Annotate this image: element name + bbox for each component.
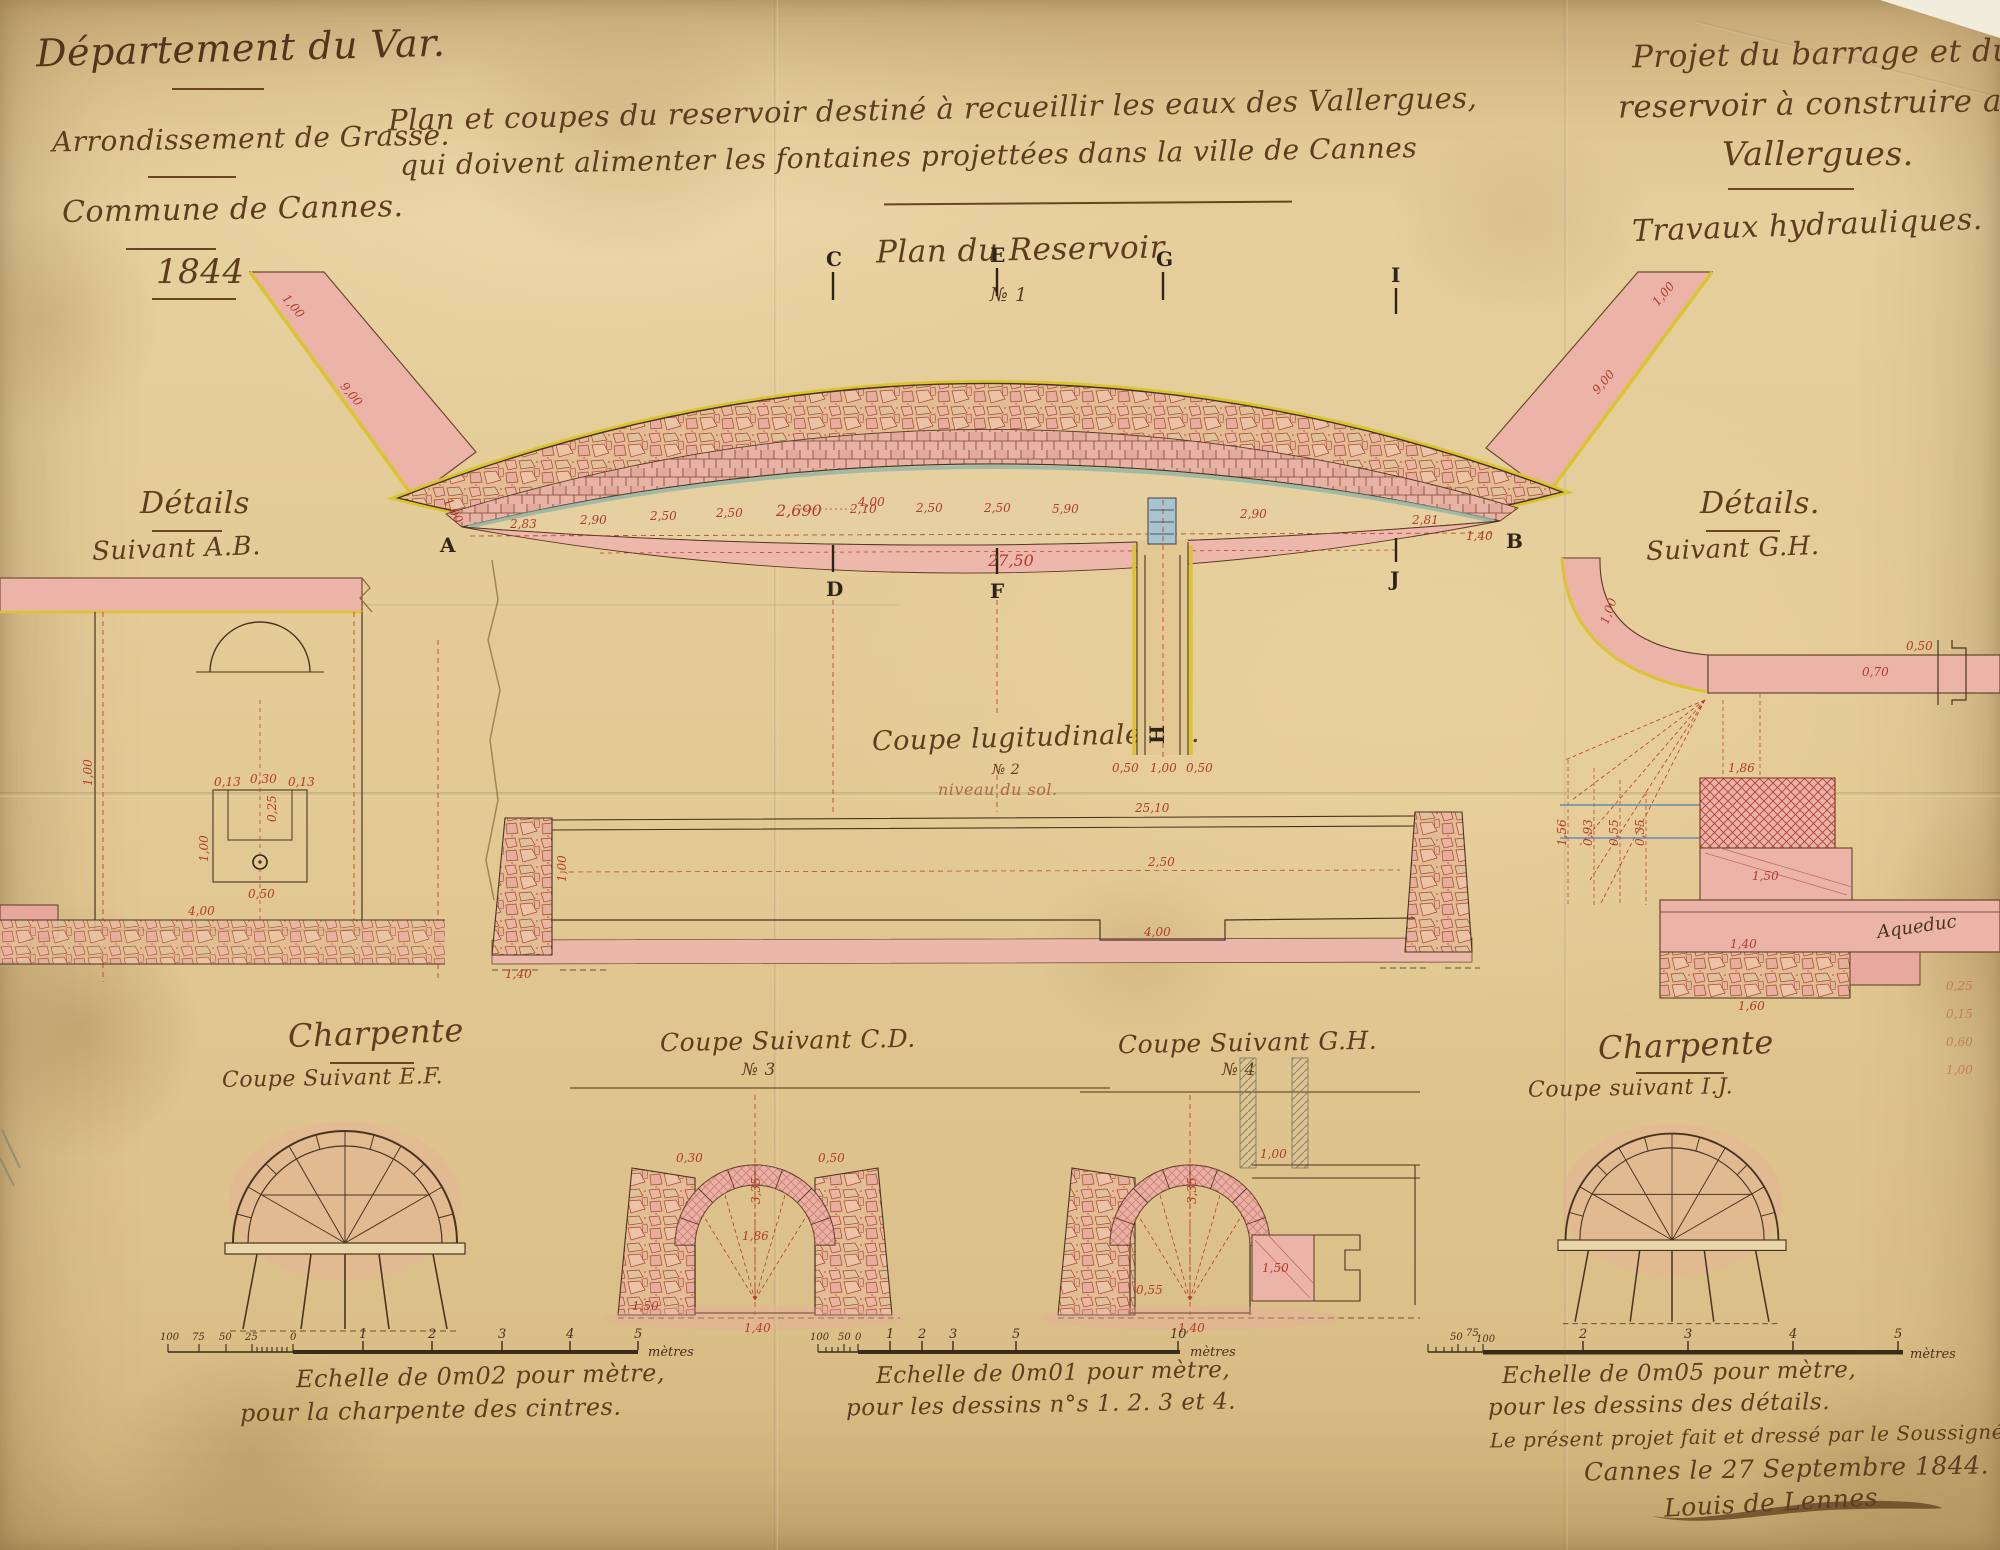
dimension-label: 1,60: [1738, 999, 1765, 1013]
scale-tick-label: 2: [1578, 1327, 1587, 1342]
plan-letter-c: C: [826, 247, 842, 271]
dimension-label: 4,00: [187, 904, 215, 918]
plan-letter-a: A: [439, 533, 456, 557]
margin-figure: 0,15: [1946, 1007, 1973, 1021]
dimension-label: 2,50: [983, 501, 1011, 515]
dimension-label: 0,50: [248, 887, 275, 901]
dimension-label: 0,50: [818, 1151, 845, 1165]
dimension-label: 2,83: [509, 517, 537, 531]
dimension-label: 4,00: [1143, 925, 1171, 939]
dimension-label: 0,13: [214, 775, 241, 789]
dimension-label: 0,50: [1186, 761, 1213, 775]
scale-unit-label: mètres: [1910, 1347, 1956, 1362]
plan-letter-e: E: [990, 243, 1005, 267]
scale-tick-label: 50: [219, 1332, 232, 1343]
plan-letter-j: J: [1388, 567, 1399, 591]
dimension-label: 4,00: [857, 495, 885, 509]
dimension-label: 1,00: [1260, 1147, 1287, 1161]
scale-tick-label: 100: [810, 1332, 830, 1343]
scale-tick-label: 4: [565, 1327, 574, 1342]
scale-tick-label: 2: [917, 1327, 926, 1342]
margin-figure: 0,60: [1946, 1035, 1973, 1049]
coupe-gh-drawing: [1040, 1058, 1420, 1330]
scale-tick-label: 5: [1012, 1327, 1020, 1342]
dimension-label: 1,00: [197, 835, 211, 862]
dimension-label: 0,50: [1112, 761, 1139, 775]
dimension-label: 3,35: [749, 1177, 763, 1204]
dimension-label: 1,40: [1730, 937, 1757, 951]
scale-tick-label: 3: [1684, 1327, 1692, 1342]
dimension-label: 0,35: [1633, 819, 1647, 846]
dimension-label: 0,93: [1581, 819, 1595, 846]
dimension-label: 0,70: [1862, 665, 1889, 679]
dimension-label: 1,00: [555, 855, 569, 882]
scale-tick-label: 3: [498, 1327, 506, 1342]
charpente-ij-drawing: [1558, 1124, 1786, 1324]
dimension-label: 2,50: [915, 501, 943, 515]
plan-letter-g: G: [1156, 247, 1173, 271]
plan-letter-h: H: [1145, 725, 1169, 744]
scale-bar-center: [818, 1341, 1180, 1354]
dimension-label: 0,55: [1136, 1283, 1163, 1297]
margin-figure: 0,25: [1946, 979, 1973, 993]
dimension-label: 1,86: [742, 1229, 769, 1243]
scale-tick-label: 0: [855, 1332, 862, 1343]
scale-tick-label: 4: [1788, 1327, 1797, 1342]
scale-bar-right: [1428, 1341, 1903, 1355]
longitudinal-section-drawing: [486, 560, 1480, 970]
dimension-label: 25,10: [1134, 801, 1170, 815]
dimension-label: 2,50: [1147, 855, 1175, 869]
dimension-label: 1,40: [1466, 529, 1493, 543]
pencil-marks: [0, 1130, 20, 1186]
dimension-label: 0,55: [1607, 819, 1621, 846]
dimension-label: 2,50: [715, 506, 743, 520]
drawing-sheet: Département du Var. Arrondissement de Gr…: [0, 0, 2000, 1550]
plan-letter-i: I: [1391, 263, 1400, 287]
scale-tick-label: 3: [949, 1327, 957, 1342]
dimension-label: 1,40: [505, 967, 532, 981]
dimension-label: 1,50: [1752, 869, 1779, 883]
scale-tick-label: 1: [886, 1327, 894, 1342]
plan-letter-d: D: [826, 577, 843, 601]
dimension-label: 0,50: [1906, 639, 1933, 653]
plan-letter-f: F: [990, 579, 1004, 603]
scale-tick-label: 2: [427, 1327, 436, 1342]
scale-unit-label: mètres: [648, 1345, 694, 1360]
dimension-label: 2,50: [649, 509, 677, 523]
scale-tick-label: 10: [1170, 1327, 1187, 1342]
scale-tick-label: 75: [192, 1332, 205, 1343]
dimension-label: 1,00: [1150, 761, 1177, 775]
dimension-label: 1,40: [744, 1321, 771, 1335]
scale-tick-label: 25: [244, 1332, 258, 1343]
margin-figure: 1,00: [1946, 1063, 1973, 1077]
dimension-label: 2,90: [1239, 507, 1267, 521]
scale-tick-label: 100: [160, 1332, 180, 1343]
dimension-label: 27,50: [987, 551, 1034, 570]
dimension-label: 1,86: [1728, 761, 1755, 775]
dimension-label: 3,35: [1185, 1177, 1199, 1204]
drawing-canvas: A B C D E F G H I J 2,83 2,90 2,50 2,50 …: [0, 0, 2000, 1550]
scale-unit-label: mètres: [1190, 1345, 1236, 1360]
coupe-cd-drawing: [570, 1088, 1110, 1330]
scale-tick-label: 100: [1476, 1334, 1496, 1345]
plan-letter-b: B: [1506, 529, 1523, 553]
scale-tick-label: 5: [634, 1327, 642, 1342]
dimension-label: 2,90: [579, 513, 607, 527]
scale-tick-label: 0: [290, 1332, 297, 1343]
dimension-label: 0,13: [288, 775, 315, 789]
dimension-label: 1,56: [1555, 819, 1569, 846]
dimension-label: 1,50: [1262, 1261, 1289, 1275]
dimension-label: 2,81: [1411, 513, 1439, 527]
charpente-ef-drawing: [225, 1121, 465, 1331]
dimension-label: 0,30: [250, 772, 277, 786]
scale-tick-label: 5: [1894, 1327, 1902, 1342]
dimension-label: 5,90: [1052, 502, 1079, 516]
signature-flourish: [1652, 1501, 1942, 1521]
scale-tick-label: 50: [838, 1332, 851, 1343]
scale-bar-left: [168, 1341, 638, 1354]
dimension-label: 0,25: [265, 795, 279, 822]
dimension-label: 0,30: [676, 1151, 703, 1165]
dimension-label: 1,00: [81, 759, 95, 786]
dimension-label: 1,50: [632, 1299, 659, 1313]
scale-tick-label: 50: [1450, 1332, 1463, 1343]
scale-tick-label: 1: [359, 1327, 367, 1342]
dimension-label: 2,690: [775, 501, 822, 520]
